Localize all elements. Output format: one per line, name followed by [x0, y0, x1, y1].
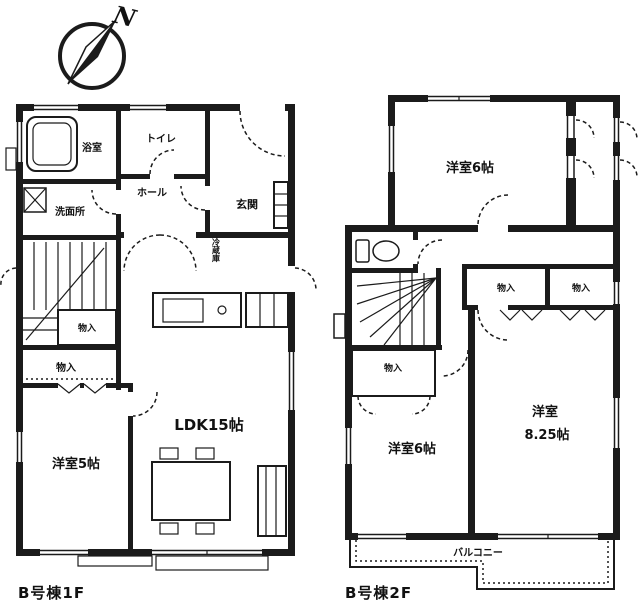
window	[152, 549, 262, 556]
kitchen-sink	[163, 299, 203, 322]
toilet-2f	[356, 240, 399, 262]
toilet-2f-door-arc	[418, 240, 442, 264]
chair	[160, 523, 178, 534]
bedroom-door-arc	[133, 392, 157, 416]
window	[566, 116, 576, 138]
window	[16, 122, 23, 162]
wall-segment	[21, 235, 116, 240]
casement-window-arc	[620, 160, 637, 177]
wall-segment	[388, 95, 620, 102]
closet-west-2f-label: 物入	[384, 362, 402, 374]
window	[34, 104, 78, 111]
bedroom-north-label: 洋室6帖	[446, 160, 494, 176]
hall-label: ホール	[137, 187, 167, 199]
window	[498, 533, 598, 540]
back-door-arc	[295, 268, 316, 289]
window	[613, 398, 620, 448]
wall-segment	[468, 310, 475, 533]
window	[16, 432, 23, 462]
casement-window-arc	[576, 160, 594, 178]
bedroom-west-label: 洋室6帖	[388, 441, 436, 457]
ldk-double-door-arc	[124, 235, 160, 271]
bay-window	[334, 314, 345, 338]
balcony-label: バルコニー	[453, 547, 503, 559]
ldk-label: LDK15帖	[174, 416, 244, 434]
closet-under-stairs-label: 物入	[78, 322, 96, 334]
bedroom-west-door-arc	[442, 350, 468, 376]
window	[130, 104, 166, 111]
compass: N	[60, 0, 140, 88]
water-heater	[6, 148, 16, 170]
bedroom-1f-label: 洋室5帖	[52, 456, 100, 472]
window	[388, 126, 395, 172]
dining-table	[152, 448, 230, 534]
toilet-label: トイレ	[146, 133, 176, 145]
side-door-arc	[1, 268, 16, 286]
entrance-hall-door-arc	[181, 186, 205, 210]
kitchen-cupboard	[246, 293, 288, 327]
bath-label: 浴室	[82, 141, 102, 154]
casement-window-arc	[620, 122, 637, 139]
floor1-caption: B号棟1F	[18, 584, 85, 602]
closet-west-label: 物入	[56, 361, 76, 374]
stove-burner	[218, 306, 226, 314]
wall-segment	[205, 111, 210, 232]
wall-segment	[436, 268, 441, 350]
bedroom-north-door-arc	[478, 195, 508, 225]
refrigerator-label: 冷蔵庫	[212, 237, 221, 263]
window	[428, 95, 490, 102]
closet-west-2f-door-arc	[358, 396, 376, 414]
wall-segment	[288, 104, 295, 556]
closet-folding-door-marks	[500, 310, 605, 320]
wall-segment	[21, 179, 116, 184]
washroom-door-arc	[92, 190, 116, 214]
north-label: N	[110, 0, 140, 33]
wall-segment	[116, 111, 121, 390]
ldk-double-door-arc	[160, 235, 196, 271]
wall-segment	[352, 268, 418, 273]
entrance-porch-steps	[78, 556, 268, 570]
wall-segment	[462, 264, 613, 269]
window	[345, 428, 352, 464]
casement-window-arc	[576, 120, 594, 138]
chair	[196, 523, 214, 534]
entrance-label: 玄関	[236, 197, 258, 211]
closet-east-label: 物入	[572, 282, 590, 294]
chair	[196, 448, 214, 459]
washroom-label: 洗面所	[55, 205, 85, 218]
chair	[160, 448, 178, 459]
window	[358, 533, 406, 540]
sofa	[258, 466, 286, 536]
window	[288, 352, 295, 410]
window	[566, 156, 576, 178]
shoe-cabinet	[274, 182, 288, 228]
floorplan-sheet: N	[0, 0, 640, 613]
floor1-plan: 浴室 洗面所 トイレ ホール 玄関 物入 物入 冷蔵庫 LDK15帖 洋室5帖 …	[1, 104, 316, 602]
window	[613, 118, 620, 142]
stairs-2f	[357, 273, 436, 345]
floorplan-drawing: N	[0, 0, 640, 613]
front-door-arc	[240, 111, 285, 156]
kitchen-counter	[153, 293, 241, 327]
doors-floor1	[1, 104, 316, 416]
window	[613, 156, 620, 180]
floor2-plan: 洋室6帖 物入 物入 物入 洋室6帖 洋室 8.25帖 バルコニー B号棟2F	[334, 95, 637, 602]
wall-segment	[345, 225, 352, 540]
floor2-caption: B号棟2F	[345, 584, 412, 602]
fixtures-floor1	[6, 117, 288, 570]
wall-segment	[545, 264, 550, 310]
bedroom-east-door-arc	[478, 310, 508, 340]
toilet-door-arc	[150, 150, 174, 174]
closet-west-2f-door-arc	[412, 396, 430, 414]
bedroom-east-label-line2: 8.25帖	[524, 427, 569, 443]
bathtub-inner	[33, 123, 71, 165]
window	[613, 282, 620, 304]
washing-machine-pan	[24, 188, 46, 212]
wall-segment	[462, 264, 467, 310]
window	[40, 549, 88, 556]
bedroom-east-label-line1: 洋室	[532, 404, 558, 420]
closet-center-label: 物入	[497, 282, 515, 294]
